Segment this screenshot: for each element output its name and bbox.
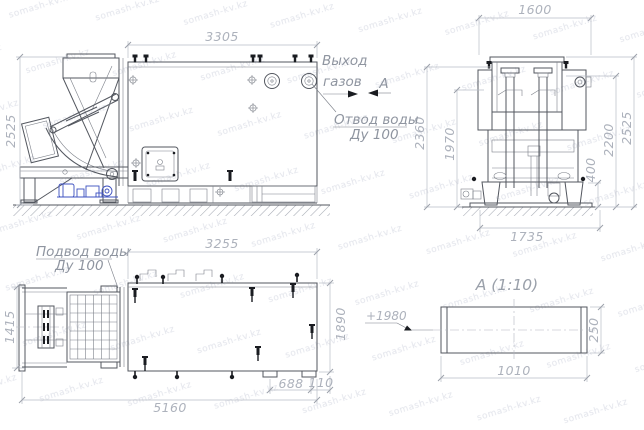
gas-outlet-label-line2: газов xyxy=(323,74,362,90)
dim-5160: 5160 xyxy=(153,400,186,415)
dim-2525-side: 2525 xyxy=(3,114,18,147)
dim-400: 400 xyxy=(583,157,598,182)
dim-110: 110 xyxy=(308,375,333,390)
water-drain-line2: Ду 100 xyxy=(349,127,399,143)
technical-drawing-canvas: somash-kv.kz somash-kv.kz xyxy=(0,0,644,430)
water-supply-line2: Ду 100 xyxy=(54,258,104,274)
dim-1970: 1970 xyxy=(442,127,457,160)
section-arrow-label: А xyxy=(378,76,388,92)
gas-outlet-label-line1: Выход xyxy=(322,53,368,69)
dim-250: 250 xyxy=(586,317,601,342)
offset-1980: +1980 xyxy=(366,309,407,323)
dim-1890: 1890 xyxy=(333,307,348,340)
dim-3255: 3255 xyxy=(205,236,238,251)
section-title: А (1:10) xyxy=(475,276,538,294)
dim-1735: 1735 xyxy=(510,229,543,244)
dim-1010: 1010 xyxy=(497,363,530,378)
dim-688: 688 xyxy=(278,376,303,391)
ground-hatch xyxy=(13,205,330,216)
dim-3305: 3305 xyxy=(205,29,238,44)
water-drain-line1: Отвод воды xyxy=(334,112,419,128)
dim-2200: 2200 xyxy=(601,123,616,156)
dim-1600: 1600 xyxy=(518,2,551,17)
dim-1415: 1415 xyxy=(2,310,17,343)
dim-2525-front: 2525 xyxy=(619,111,634,144)
drawing-page: somash-kv.kz somash-kv.kz xyxy=(0,0,644,430)
ground-hatch xyxy=(458,207,596,216)
